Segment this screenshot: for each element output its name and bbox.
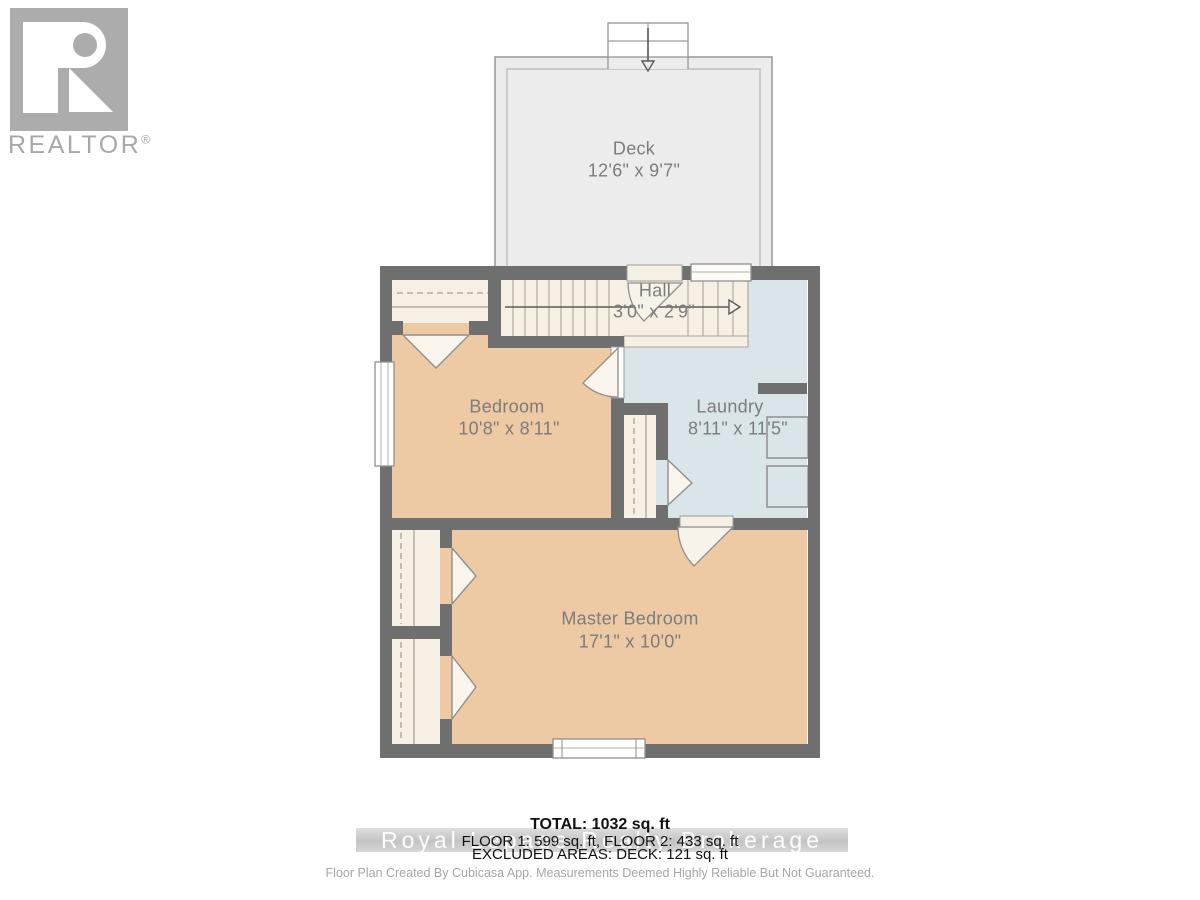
- logo-r-stem: [23, 22, 58, 113]
- room-dims-master-bedroom: 17'1" x 10'0": [579, 632, 682, 653]
- room-laundry-upper: [748, 279, 807, 348]
- window-bedroom-left: [375, 362, 394, 466]
- realtor-logo-text: REALTOR®: [8, 131, 150, 160]
- realtor-logo-mark: [10, 8, 130, 134]
- hall-door-sill: [627, 265, 682, 281]
- realtor-wordmark: REALTOR: [8, 131, 141, 159]
- registered-symbol: ®: [141, 133, 150, 147]
- hall-landing: [624, 336, 748, 347]
- wall-below-stairs: [488, 336, 624, 348]
- disclaimer: Floor Plan Created By Cubicasa App. Meas…: [0, 866, 1200, 880]
- room-label-laundry: Laundry: [696, 397, 763, 418]
- logo-r-counter: [73, 33, 97, 57]
- room-dims-deck: 12'6" x 9'7": [588, 161, 680, 182]
- summary-total: TOTAL: 1032 sq. ft: [0, 816, 1200, 834]
- room-label-hall: Hall: [639, 281, 671, 302]
- room-dims-bedroom: 10'8" x 8'11": [458, 419, 559, 440]
- window-master-bottom: [553, 739, 645, 758]
- room-dims-laundry: 8'11" x 11'5": [688, 419, 788, 440]
- floor-plan-page: REALTOR®: [0, 0, 1200, 900]
- laundry-wall-stub: [758, 383, 807, 394]
- room-label-master-bedroom: Master Bedroom: [561, 609, 698, 630]
- window-hall-top: [691, 264, 751, 281]
- floor-plan-drawing: [0, 0, 1200, 900]
- room-label-deck: Deck: [613, 139, 655, 160]
- room-label-bedroom: Bedroom: [469, 397, 544, 418]
- realtor-logo: [10, 8, 130, 139]
- summary-excluded-areas: EXCLUDED AREAS: DECK: 121 sq. ft: [0, 846, 1200, 863]
- room-dims-hall: 3'0" x 2'9": [613, 302, 695, 323]
